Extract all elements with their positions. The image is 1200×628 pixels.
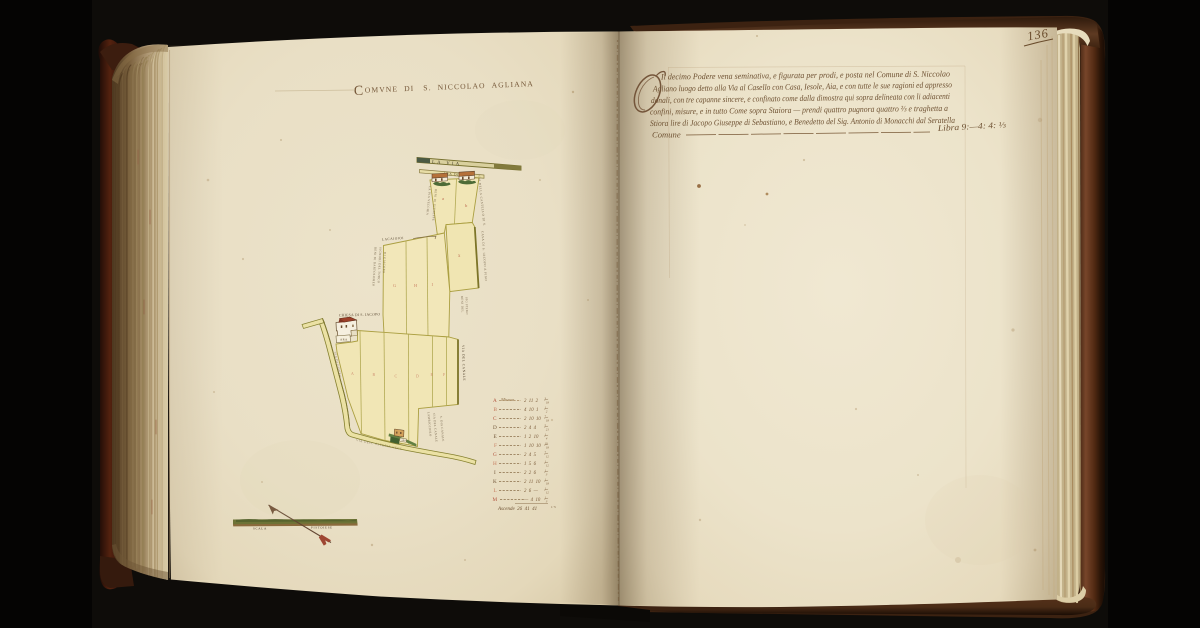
svg-text:G: G [393,283,396,288]
svg-text:SCALA: SCALA [253,527,267,531]
svg-text:— 4 10: — 4 10 [523,498,541,503]
svg-text:1·3: 1·3 [551,505,556,509]
svg-text:PISTOIESE: PISTOIESE [311,526,333,530]
svg-text:F: F [494,443,497,449]
svg-text:I: I [494,470,496,476]
svg-text:B: B [494,407,498,413]
svg-text:2 11 2: 2 11 2 [524,399,539,404]
svg-text:Ascende 26 41 41: Ascende 26 41 41 [497,507,537,512]
svg-text:1 2 10: 1 2 10 [524,435,539,440]
svg-text:E: E [494,434,497,440]
svg-text:ARA: ARA [401,439,406,442]
svg-text:M: M [493,497,498,503]
svg-text:4 10 1: 4 10 1 [524,408,538,413]
svg-text:H: H [493,461,497,467]
svg-text:A: A [351,372,354,376]
svg-text:2 10 10: 2 10 10 [524,417,541,422]
svg-text:C: C [493,416,497,422]
svg-text:A: A [493,398,497,404]
svg-text:1 5 6: 1 5 6 [524,462,537,467]
svg-text:B: B [373,373,376,377]
svg-text:Misura: Misura [500,397,515,402]
svg-text:2 4 5: 2 4 5 [524,453,537,458]
svg-text:2 6 —: 2 6 — [524,489,539,494]
svg-text:D: D [493,425,497,431]
svg-text:2 4 4: 2 4 4 [524,426,537,431]
svg-text:BENI DEL: BENI DEL [460,296,465,313]
svg-text:G: G [493,452,497,458]
svg-text:C: C [354,84,364,99]
svg-text:C: C [395,375,398,379]
svg-text:K: K [493,479,497,485]
svg-text:H: H [414,283,417,288]
svg-text:1 10 10: 1 10 10 [524,444,541,449]
svg-text:2 11 10: 2 11 10 [524,480,541,485]
svg-text:D: D [416,375,419,379]
svg-text:Comune: Comune [652,130,681,140]
svg-text:2 2 6: 2 2 6 [524,471,537,476]
svg-text:ARA: ARA [340,337,348,341]
svg-text:a: a [442,196,444,201]
svg-text:SIG PIERO: SIG PIERO [465,297,470,315]
svg-text:L: L [494,488,497,494]
